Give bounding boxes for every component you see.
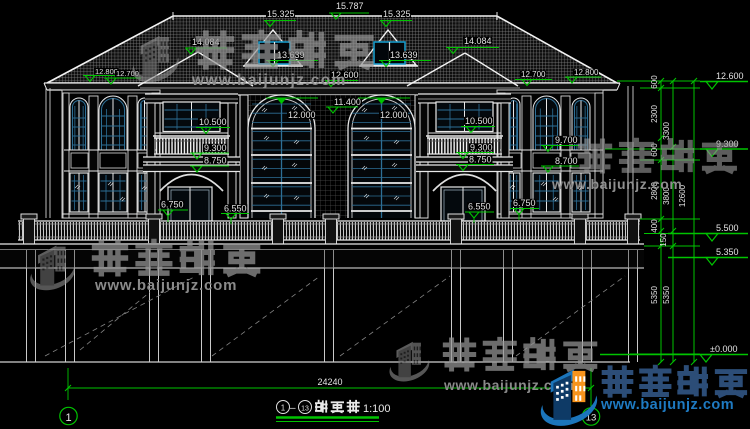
svg-text:2300: 2300 <box>650 105 659 123</box>
svg-text:11.400: 11.400 <box>334 97 361 107</box>
svg-text:15.787: 15.787 <box>336 1 364 11</box>
svg-text:9.700: 9.700 <box>555 135 578 145</box>
svg-text:www.baijunjz.com: www.baijunjz.com <box>191 72 347 89</box>
svg-text:10.500: 10.500 <box>199 117 227 127</box>
svg-text:6.550: 6.550 <box>468 202 491 212</box>
svg-text:1: 1 <box>65 412 71 424</box>
svg-text:9.300: 9.300 <box>470 143 493 153</box>
svg-text:www.baijunjz.com: www.baijunjz.com <box>551 176 682 192</box>
svg-text:12.000: 12.000 <box>288 110 316 120</box>
svg-text:150: 150 <box>659 233 668 247</box>
svg-text:5350: 5350 <box>662 286 671 304</box>
svg-text:1: 1 <box>281 404 286 413</box>
svg-text:13: 13 <box>301 406 309 413</box>
svg-text:1:100: 1:100 <box>363 403 391 415</box>
svg-text:8.750: 8.750 <box>204 156 227 166</box>
svg-text:600: 600 <box>650 75 659 89</box>
svg-text:14.084: 14.084 <box>464 36 492 46</box>
svg-text:5.500: 5.500 <box>716 223 739 233</box>
svg-text:www.baijunjz.com: www.baijunjz.com <box>600 397 734 413</box>
svg-text:6.550: 6.550 <box>224 204 247 214</box>
svg-text:5350: 5350 <box>650 286 659 304</box>
svg-text:9.300: 9.300 <box>204 143 227 153</box>
svg-text:8.750: 8.750 <box>469 155 492 165</box>
svg-text:15.325: 15.325 <box>383 9 411 19</box>
svg-text:12.800: 12.800 <box>574 68 599 77</box>
svg-text:400: 400 <box>650 219 659 233</box>
svg-text:13.639: 13.639 <box>390 50 418 60</box>
svg-text:15.325: 15.325 <box>267 9 295 19</box>
svg-text:12.000: 12.000 <box>380 110 408 120</box>
svg-text:12.800: 12.800 <box>95 67 118 76</box>
svg-text:24240: 24240 <box>317 377 342 387</box>
svg-text:5.350: 5.350 <box>716 247 739 257</box>
svg-text:12.700: 12.700 <box>521 70 546 79</box>
svg-text:12.600: 12.600 <box>716 71 744 81</box>
svg-text:8.700: 8.700 <box>555 156 578 166</box>
svg-text:6.750: 6.750 <box>161 200 184 210</box>
svg-text:www.baijunjz.com: www.baijunjz.com <box>94 277 237 294</box>
svg-text:3300: 3300 <box>662 122 671 140</box>
svg-text:–: – <box>290 403 296 414</box>
svg-text:6.750: 6.750 <box>513 198 536 208</box>
svg-text:±0.000: ±0.000 <box>710 344 737 354</box>
svg-text:10.500: 10.500 <box>465 116 493 126</box>
